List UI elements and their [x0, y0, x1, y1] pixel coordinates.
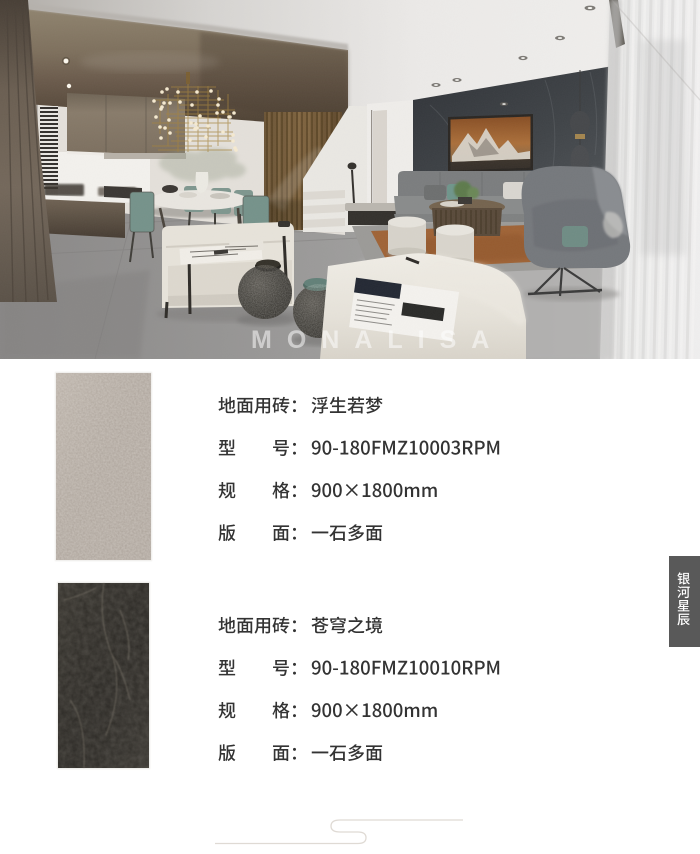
svg-text:MONALISA: MONALISA — [251, 326, 504, 354]
